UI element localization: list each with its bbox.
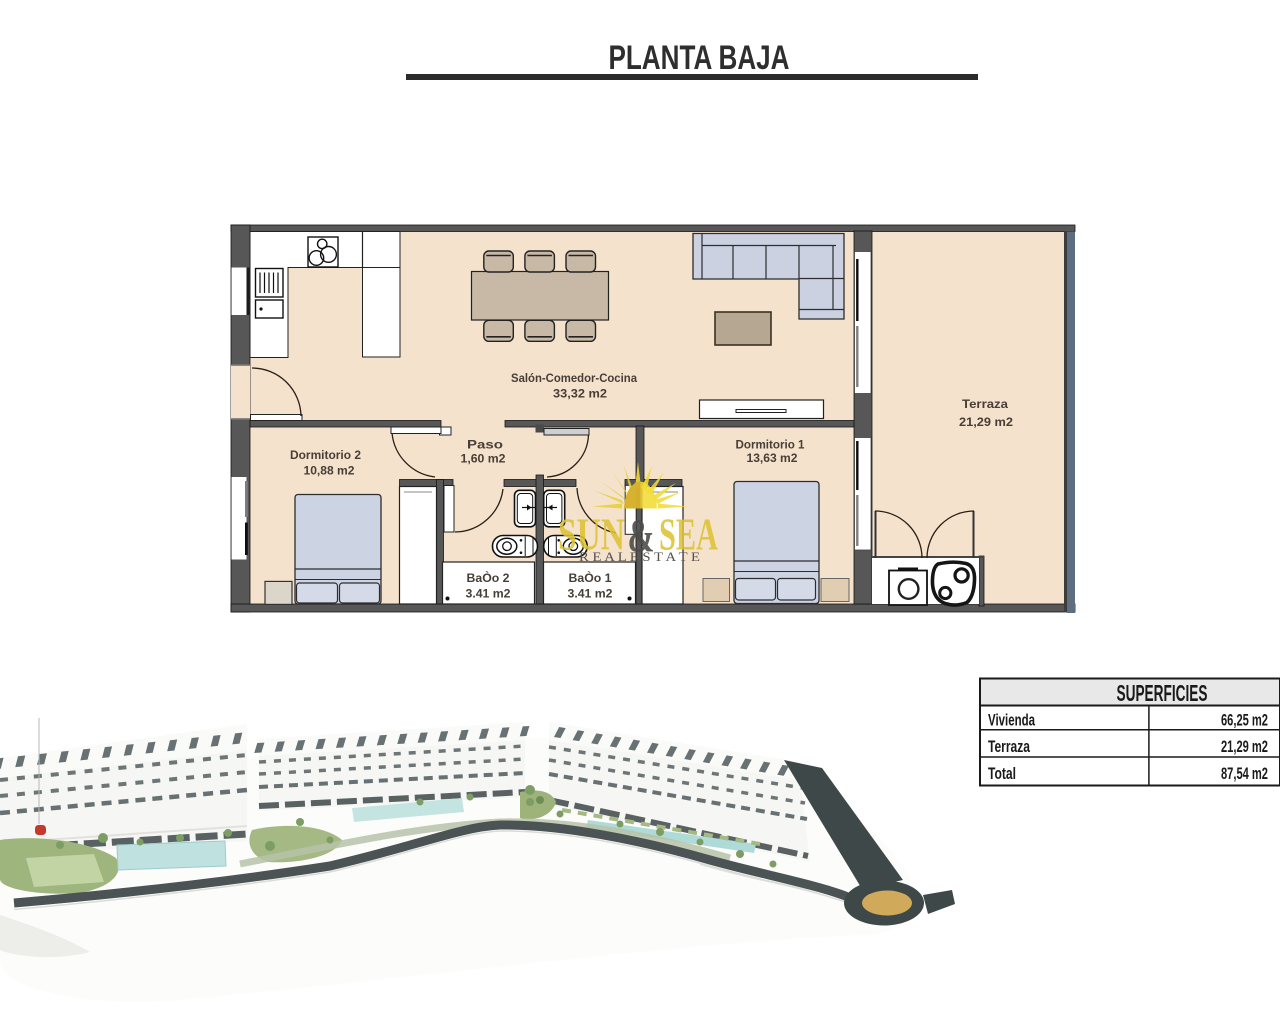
svg-text:R E A L E S T A T E: R E A L E S T A T E	[579, 550, 700, 564]
svg-text:Dormitorio 1: Dormitorio 1	[736, 438, 805, 452]
svg-text:PLANTA BAJA: PLANTA BAJA	[609, 39, 790, 77]
svg-text:87,54 m2: 87,54 m2	[1221, 764, 1268, 783]
svg-text:21,29 m2: 21,29 m2	[959, 415, 1013, 429]
svg-text:13,63 m2: 13,63 m2	[747, 451, 798, 465]
svg-text:10,88 m2: 10,88 m2	[304, 464, 355, 478]
svg-text:Vivienda: Vivienda	[988, 711, 1035, 730]
svg-text:Paso: Paso	[467, 438, 503, 452]
svg-text:21,29 m2: 21,29 m2	[1221, 737, 1268, 756]
svg-text:Terraza: Terraza	[962, 397, 1008, 411]
svg-text:66,25 m2: 66,25 m2	[1221, 711, 1268, 730]
svg-text:Terraza: Terraza	[988, 737, 1030, 756]
svg-text:BaÒo 1: BaÒo 1	[569, 570, 612, 585]
svg-text:SUPERFICIES: SUPERFICIES	[1117, 680, 1208, 706]
svg-text:Salón-Comedor-Cocina: Salón-Comedor-Cocina	[511, 371, 637, 385]
svg-text:3.41 m2: 3.41 m2	[568, 587, 613, 601]
svg-text:1,60 m2: 1,60 m2	[461, 452, 506, 466]
svg-text:Total: Total	[988, 764, 1016, 783]
svg-text:BaÒo 2: BaÒo 2	[467, 570, 510, 585]
svg-text:3.41 m2: 3.41 m2	[466, 587, 511, 601]
svg-text:33,32 m2: 33,32 m2	[553, 387, 607, 401]
svg-text:Dormitorio 2: Dormitorio 2	[290, 448, 361, 462]
